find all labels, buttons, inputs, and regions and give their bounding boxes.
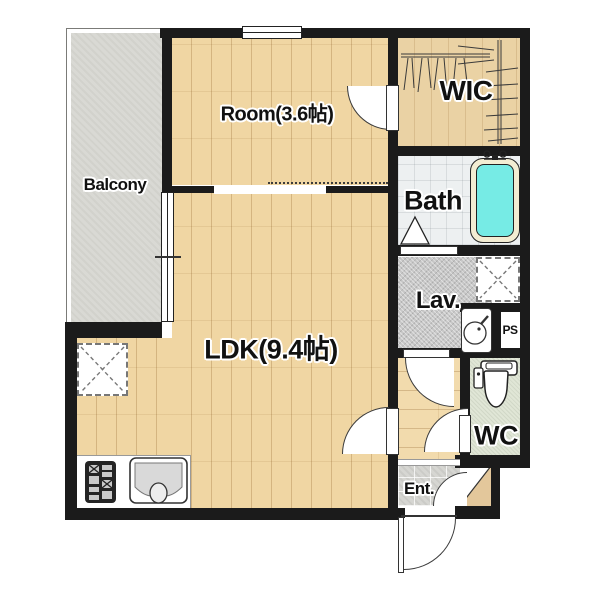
dashed-x-icon [478,259,518,300]
window-top [242,26,302,39]
room-label: Room(3.6帖) [221,98,334,127]
entry-door-leaf [398,517,404,573]
window-sash-line [243,32,301,33]
dashed-x-icon [79,345,126,394]
wall-room-ldk-right [326,186,388,193]
wall-ldk-right [388,192,398,508]
window-center-tick [155,256,181,258]
kitchen-sink-icon [129,457,188,504]
refrigerator-space [77,343,128,396]
wall-bottom [65,508,405,520]
wall-left [65,322,77,520]
wall-room-wic-lower [388,130,398,192]
stove-icon [84,460,117,504]
wall-balcony-bottom [65,322,162,338]
room-ldk-opening [214,185,326,194]
bath-door [400,246,458,255]
entry-door-arc [404,518,456,570]
ent-label: Ent. [404,479,434,499]
ps-label: PS [502,323,517,337]
bath-door-triangle-icon [399,215,431,246]
washing-machine-space [476,257,520,302]
wic-label: WIC [440,75,493,107]
lav-label: Lav. [416,287,460,315]
wall-room-balcony [162,28,172,192]
bathtub-water [476,164,514,237]
bath-label: Bath [404,186,462,217]
room-ldk-dotted-line [268,182,388,184]
bathtub-icon [470,158,520,243]
ldk-door-leaf [386,408,399,455]
floor-plan: Balcony Room(3.6帖) WIC Bath Lav. PS WC E… [0,0,600,600]
balcony-label: Balcony [84,175,147,195]
lavatory-sink-icon [461,308,492,353]
toilet-icon [472,359,519,414]
wall-ent-bottom [455,506,498,519]
wc-label: WC [474,421,518,452]
wall-top [160,28,530,38]
wc-door-leaf [459,415,471,453]
ldk-label: LDK(9.4帖) [204,328,338,367]
wall-ps-left [492,303,501,358]
lavatory-door-leaf [403,349,450,358]
entry-threshold-line [401,515,457,517]
entrance-step-line [398,459,460,466]
bath-faucet-icon [481,149,509,162]
wall-room-wic-upper [388,28,398,85]
